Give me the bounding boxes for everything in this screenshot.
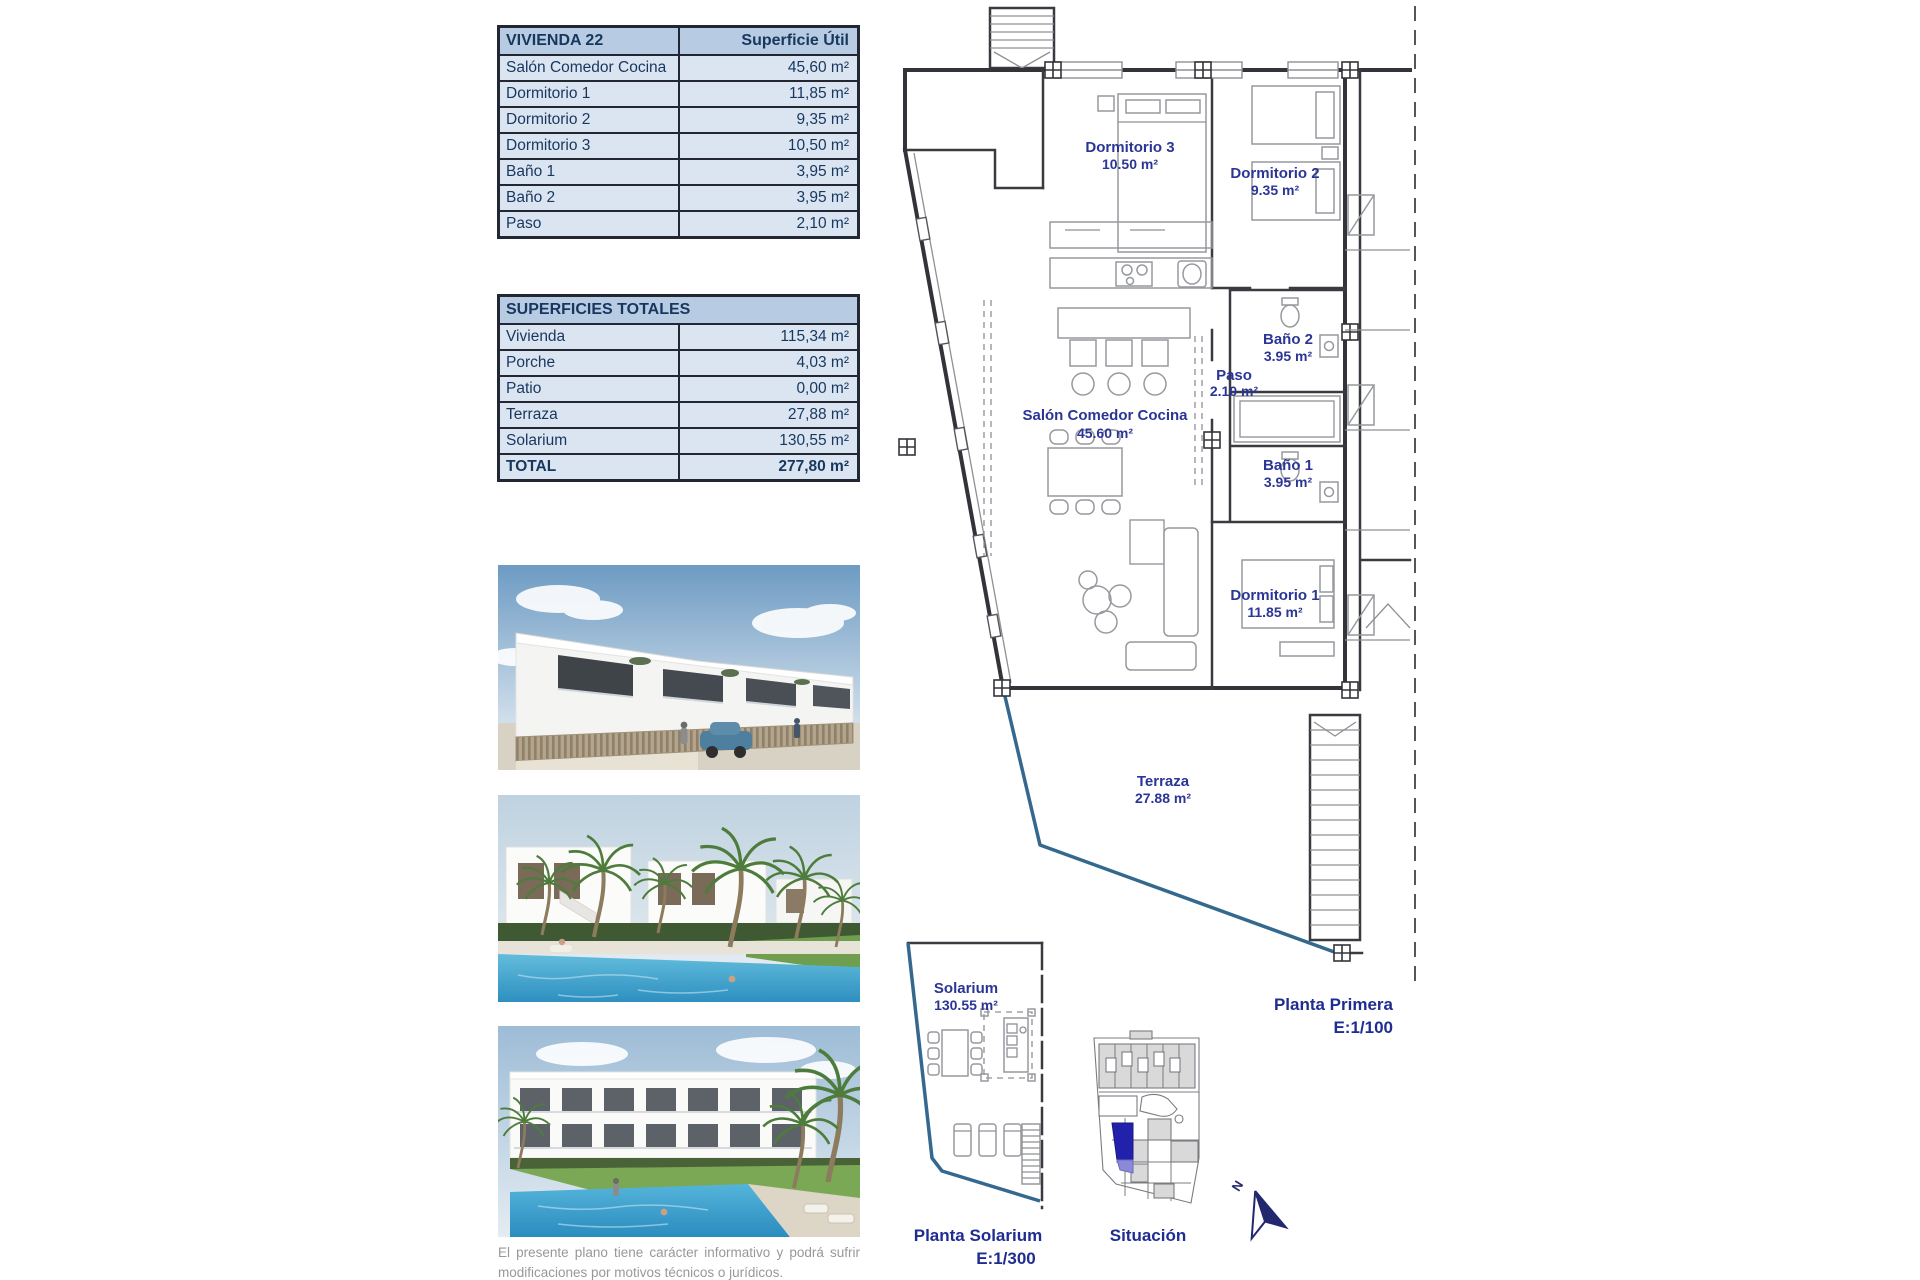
brochure-page: VIVIENDA 22 Superficie Útil Salón Comedo… (0, 0, 1920, 1280)
situacion-plan: Situación (1094, 1031, 1199, 1245)
unit-table-title: VIVIENDA 22 (499, 27, 679, 56)
room-label-bano1: Baño 1 (1263, 457, 1313, 474)
floor-plan-scale: E:1/100 (1333, 1018, 1393, 1037)
site-block (1130, 1031, 1152, 1039)
north-label: N (1229, 1178, 1247, 1194)
table-row: SUPERFICIES TOTALES (499, 296, 859, 325)
photo-pool-render (498, 795, 860, 1002)
plans-svg: Dormitorio 3 10.50 m² Dormitorio 2 9.35 … (890, 0, 1430, 1280)
room-area-salon: 45.60 m² (1077, 425, 1133, 441)
photo-building-render (498, 1026, 860, 1237)
disclaimer-text: El presente plano tiene carácter informa… (498, 1243, 860, 1280)
table-row: Vivienda115,34 m² (499, 324, 859, 350)
main-floor-plan: Dormitorio 3 10.50 m² Dormitorio 2 9.35 … (899, 6, 1415, 1037)
room-label-dormitorio1: Dormitorio 1 (1230, 587, 1319, 604)
unit-table-value-header: Superficie Útil (679, 27, 859, 56)
table-row: Baño 13,95 m² (499, 159, 859, 185)
room-area-bano1: 3.95 m² (1264, 474, 1313, 490)
table-row: Dormitorio 310,50 m² (499, 133, 859, 159)
apartment-building (510, 1072, 816, 1158)
sofa-icon (1079, 520, 1198, 670)
shower-icon (1234, 396, 1340, 442)
porch-walls (905, 150, 1043, 188)
bar-stools-icons (1070, 340, 1168, 395)
solarium-caption: Planta Solarium (914, 1226, 1042, 1245)
table-row: Solarium130,55 m² (499, 428, 859, 454)
table-row: VIVIENDA 22 Superficie Útil (499, 27, 859, 56)
neighbour-strip (1345, 70, 1410, 690)
room-label-salon: Salón Comedor Cocina (1022, 407, 1188, 424)
north-arrow-icon: N (1227, 1167, 1286, 1240)
stair-icon (1310, 715, 1360, 940)
totals-table: SUPERFICIES TOTALES Vivienda115,34 m² Po… (497, 294, 860, 482)
stair-icon (1022, 1124, 1040, 1184)
bed-double-icon (1098, 94, 1206, 252)
room-area-bano2: 3.95 m² (1264, 348, 1313, 364)
photo-exterior-render (498, 565, 860, 770)
situacion-caption: Situación (1110, 1226, 1187, 1245)
sun-lounger-icons (954, 1124, 1021, 1156)
table-row: Dormitorio 111,85 m² (499, 81, 859, 107)
room-label-dormitorio2: Dormitorio 2 (1230, 165, 1319, 182)
table-row: Patio0,00 m² (499, 376, 859, 402)
floor-plan-caption: Planta Primera (1274, 995, 1394, 1014)
room-area-dormitorio3: 10.50 m² (1102, 156, 1158, 172)
table-row: Dormitorio 29,35 m² (499, 107, 859, 133)
site-circle (1175, 1115, 1183, 1123)
room-area-dormitorio1: 11.85 m² (1247, 604, 1303, 620)
pergola-icon (981, 1009, 1035, 1081)
totals-table-title: SUPERFICIES TOTALES (499, 296, 859, 325)
table-row: Baño 23,95 m² (499, 185, 859, 211)
solarium-scale: E:1/300 (976, 1249, 1036, 1268)
room-label-dormitorio3: Dormitorio 3 (1085, 139, 1174, 156)
table-row: Paso2,10 m² (499, 211, 859, 238)
pool (510, 1184, 790, 1237)
room-label-terraza: Terraza (1137, 773, 1190, 790)
room-area-solarium: 130.55 m² (934, 997, 998, 1013)
table-row: Porche4,03 m² (499, 350, 859, 376)
stair-icon (990, 8, 1054, 68)
room-area-dormitorio2: 9.35 m² (1251, 182, 1300, 198)
table-row: Terraza27,88 m² (499, 402, 859, 428)
site-plot (1099, 1096, 1137, 1116)
room-area-terraza: 27.88 m² (1135, 790, 1191, 806)
room-label-solarium: Solarium (934, 980, 998, 997)
solarium-plan: Solarium 130.55 m² Planta Solarium E:1/3… (908, 943, 1042, 1268)
outdoor-table-icon (928, 1030, 982, 1076)
room-label-paso: Paso (1216, 367, 1252, 384)
bed-single-icons (1252, 86, 1340, 220)
terraza-boundary (1003, 688, 1337, 953)
room-area-paso: 2.10 m² (1210, 383, 1259, 399)
unit-surface-table: VIVIENDA 22 Superficie Útil Salón Comedo… (497, 25, 860, 239)
dining-table-icon (1048, 430, 1122, 514)
table-row: Salón Comedor Cocina45,60 m² (499, 55, 859, 81)
room-label-bano2: Baño 2 (1263, 331, 1313, 348)
table-row-total: TOTAL277,80 m² (499, 454, 859, 481)
